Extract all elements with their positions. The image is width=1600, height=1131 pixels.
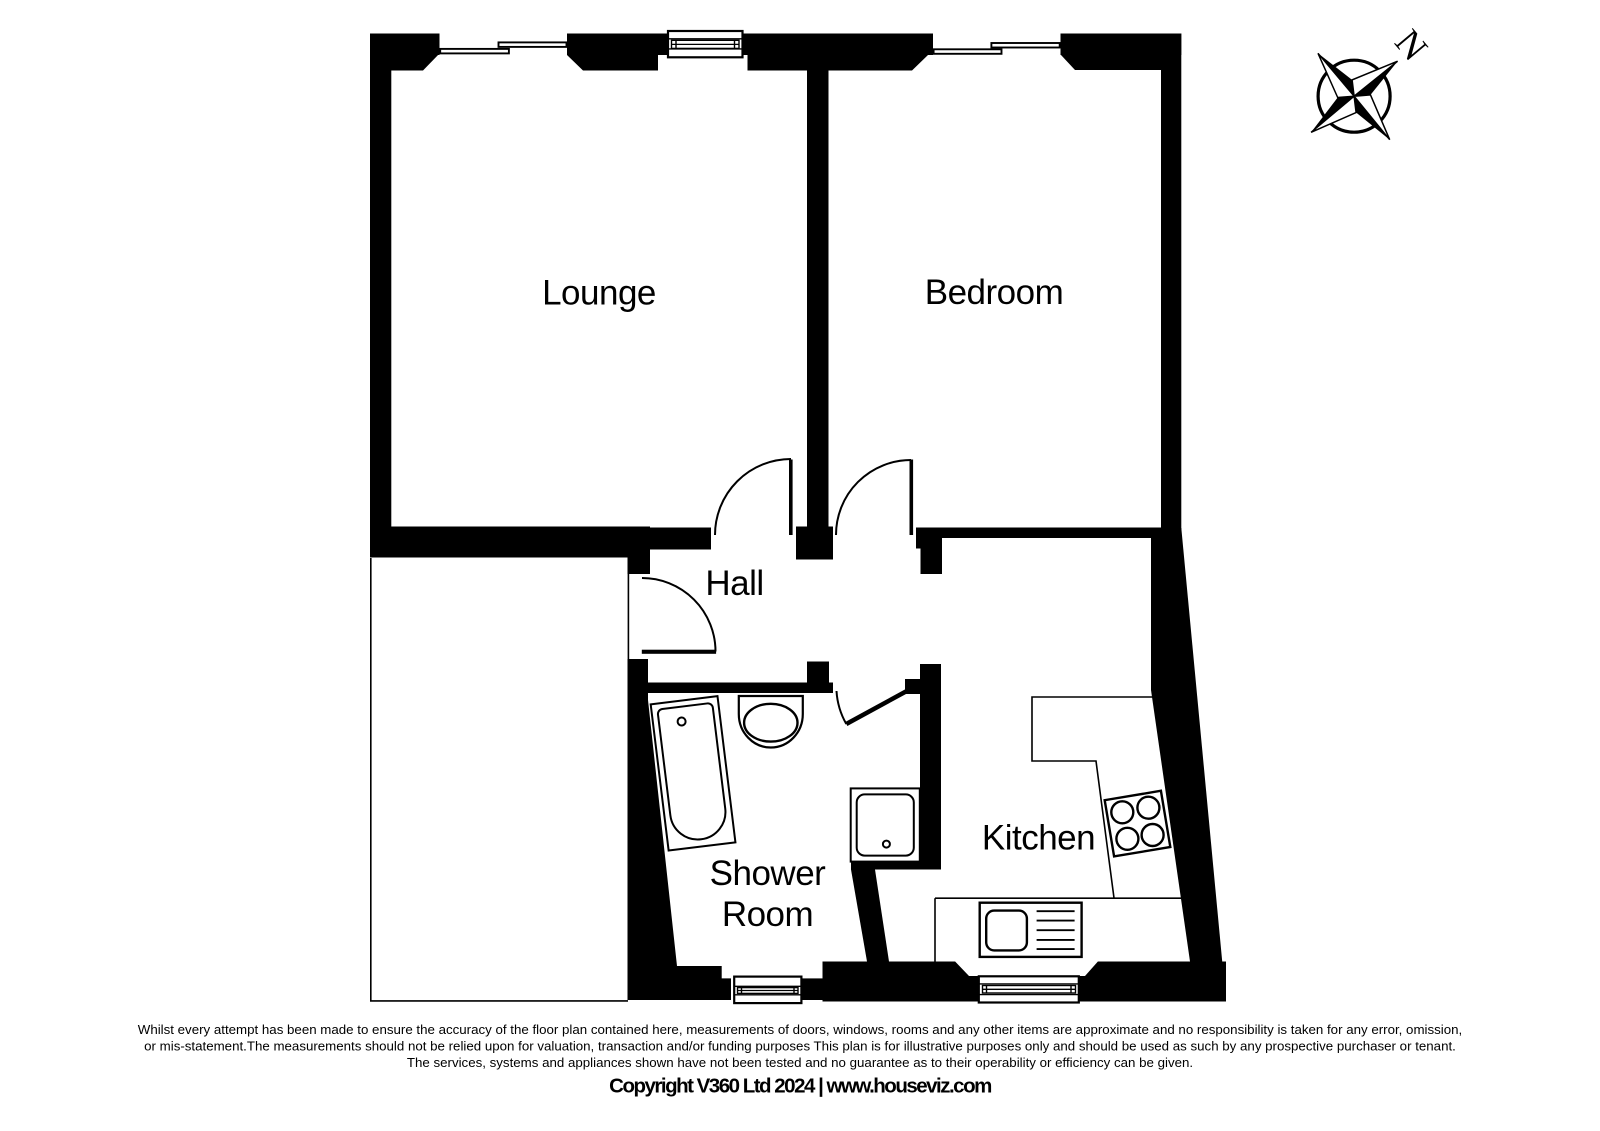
svg-text:Kitchen: Kitchen — [982, 819, 1095, 858]
svg-text:The services, systems and appl: The services, systems and appliances sho… — [407, 1055, 1193, 1070]
svg-text:Lounge: Lounge — [542, 274, 656, 313]
svg-text:Copyright V360 Ltd 2024 | www.: Copyright V360 Ltd 2024 | www.houseviz.c… — [609, 1075, 991, 1098]
svg-text:Bedroom: Bedroom — [925, 273, 1064, 312]
svg-text:Whilst every attempt has been: Whilst every attempt has been made to en… — [138, 1022, 1462, 1037]
svg-text:or mis-statement.The measureme: or mis-statement.The measurements should… — [144, 1039, 1456, 1054]
svg-text:Shower: Shower — [710, 854, 827, 893]
svg-text:Room: Room — [722, 895, 813, 934]
svg-text:Hall: Hall — [705, 564, 763, 603]
